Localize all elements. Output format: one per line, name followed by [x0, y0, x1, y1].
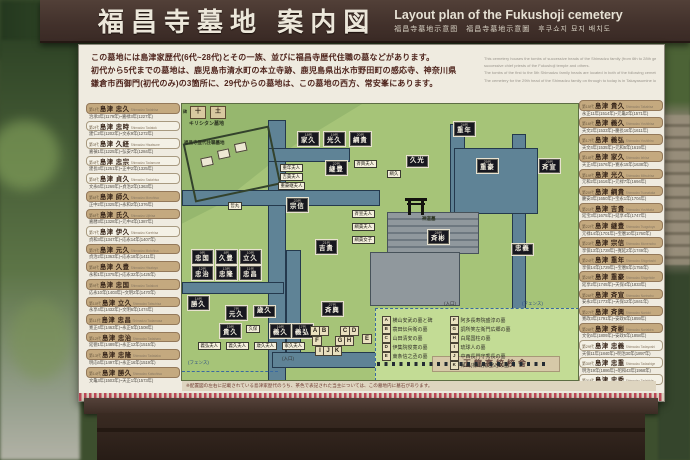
lord-entry: 第11代島津 忠昌Shimadzu Tadamasa寛正4年(1463年)~永正… [86, 314, 180, 332]
tomb-box-忠義: 忠義 [512, 244, 533, 255]
lord-entry-name: 第16代島津 義久Shimadzu Yoshihisa [579, 117, 663, 128]
lord-entry-name: 第21代島津 吉貴Shimadzu Yoshitaka [579, 203, 663, 214]
tomb-name: 義弘 [295, 330, 310, 337]
lord-name-romaji: Shimadzu Morohisa [131, 196, 159, 200]
lord-entry: 第4代島津 忠宗Shimadzu Tadamune建長3年(1251年)~正中2… [86, 156, 180, 174]
family-tomb-box: 綱貴女子 [352, 236, 375, 244]
generation-label: 第23代 [582, 242, 594, 247]
lord-entry-name: 第17代島津 義弘Shimadzu Yoshihiro [579, 134, 663, 145]
tomb-box-綱貴: 20代綱貴 [350, 132, 371, 146]
lord-entry-name: 第29代島津 忠義Shimadzu Tadayoshi [579, 340, 663, 351]
sign-post-rail [84, 398, 658, 414]
lord-dates: 建仁2年(1202年)~文永9年(1272年) [86, 131, 180, 137]
lord-name: 島津 忠隆 [102, 350, 132, 359]
lord-dates: 永正11年(1514年)~元亀2年(1571年) [579, 111, 663, 117]
lord-name-romaji: Shimadzu Iehisa [626, 156, 650, 160]
intro-text-japanese: この墓地には島津家歴代(6代~28代)とその一族、並びに福昌寺歴代住職の墓などが… [91, 52, 483, 90]
lord-name-romaji: Shimadzu Katsuhisa [133, 372, 162, 376]
lord-entry-name: 第20代島津 綱貴Shimadzu Tsunataka [579, 186, 663, 197]
lord-entry: 第10代島津 立久Shimadzu Tatsuhisa永享4年(1432年)~文… [86, 297, 180, 315]
sign-post-base [97, 413, 645, 460]
lord-name: 島津 継豊 [595, 221, 625, 230]
lord-entry: 第1代島津 忠久Shimadzu Tadahisa治承3年(1179年)~嘉禄3… [86, 103, 180, 121]
lord-entry: 第23代島津 宗信Shimadzu Munenobu享保13年(1728年)~寛… [579, 237, 663, 254]
intro-line-en: This cemetery houses the tombs of succes… [484, 55, 656, 62]
priests-cemetery-label: 福昌寺歴代住職墓地 [184, 140, 225, 145]
christian-grave-icon: 土 [210, 106, 226, 119]
tomb-box-斉宣: 26代斉宣 [539, 159, 560, 173]
lord-entry-name: 第1代島津 忠久Shimadzu Tadahisa [86, 103, 180, 114]
legend-key: C [382, 334, 391, 343]
map-marker-H: H [344, 336, 354, 346]
tomb-name: 光久 [327, 138, 342, 145]
cemetery-map: 十 土 碑 キリシタン墓地 福昌寺歴代住職墓地 神道墓 玉龍高校校舎 (入口) … [181, 103, 579, 381]
intro-line-en: The cemetery for the 29th head of the Sh… [484, 77, 656, 84]
legend-text: 調所笑左衛門広郷の墓 [461, 326, 511, 333]
christian-grave-icon: 十 [190, 106, 206, 119]
legend-key: E [382, 352, 391, 361]
lord-dates: 天文4年(1535年)~元和5年(1619年) [579, 145, 663, 151]
kirishitan-cemetery-label: キリシタン墓地 [189, 120, 224, 127]
grave-icon [217, 148, 231, 159]
tomb-box-吉貴: 21代吉貴 [316, 240, 337, 254]
lord-name-romaji: Shimadzu Munenobu [626, 242, 656, 246]
tomb-box-重豪: 25代重豪 [477, 159, 498, 173]
tomb-box-継豊: 22代継豊 [326, 161, 347, 175]
legend-item-B: B蓑田伝兵衛の墓 [382, 325, 428, 334]
fence-label: (フェンス) [188, 360, 209, 366]
tomb-name: 貴久 [223, 330, 238, 337]
map-road [370, 252, 460, 306]
legend-text: 帰山(樺山資之父)の墓 [461, 362, 509, 369]
tomb-name: 義久 [273, 330, 288, 337]
lord-name-romaji: Shimadzu Tadatoki [131, 126, 158, 130]
lord-name: 島津 光久 [595, 170, 625, 179]
lord-entry-name: 第3代島津 久経Shimadzu Hisatsune [86, 138, 180, 149]
lord-name: 島津 重年 [595, 255, 625, 264]
generation-label: 第14代 [89, 372, 101, 377]
family-tomb-box: 家久夫人 [282, 342, 305, 350]
lord-entry-name: 第6代島津 氏久Shimadzu Ujihisa [86, 209, 180, 220]
legend-item-A: A横山安武の墓と碑 [382, 316, 433, 325]
generation-label: 第16代 [582, 122, 594, 127]
tomb-box-歳久: 歳久 [254, 306, 275, 317]
entrance-label: (入口) [444, 301, 456, 307]
lord-entry-name: 第14代島津 勝久Shimadzu Katsuhisa [86, 367, 180, 378]
lord-name-romaji: Shimadzu Hisatsune [131, 143, 160, 147]
legend-key: J [450, 352, 459, 361]
lord-entry: 第7代島津 伊久Shimadzu Korehisa貞和3年(1347年)~応永1… [86, 226, 180, 244]
tomb-box-忠国: 9代忠国 [192, 250, 213, 264]
lord-dates: 延徳1年(1489年)~永正12年(1515年) [86, 342, 180, 348]
legend-text: 東条信之丞の墓 [393, 353, 428, 360]
lord-entry: 第20代島津 綱貴Shimadzu Tsunataka慶安3年(1650年)~宝… [579, 186, 663, 203]
lord-name: 島津 忠宗 [100, 157, 130, 166]
legend-key: B [382, 325, 391, 334]
lord-dates: 元禄14年(1701年)~宝暦10年(1760年) [579, 231, 663, 237]
tomb-name: 重年 [457, 128, 472, 135]
tomb-name: 歳久 [257, 308, 272, 315]
lord-name-romaji: Shimadzu Korehisa [131, 231, 159, 235]
tomb-box-斉彬: 28代斉彬 [428, 230, 449, 244]
lord-entry-name: 第19代島津 光久Shimadzu Mitsuhisa [579, 169, 663, 180]
lord-name-romaji: Shimadzu Hisatoyo [131, 266, 158, 270]
legend-key: H [450, 334, 459, 343]
tomb-name: 吉貴 [319, 246, 334, 253]
generation-label: 第2代 [89, 126, 99, 131]
lord-name-romaji: Shimadzu Narinobu [626, 294, 654, 298]
lord-entry: 第16代島津 義久Shimadzu Yoshihisa天文2年(1533年)~慶… [579, 117, 663, 134]
tomb-name: 重豪 [480, 165, 495, 172]
lord-entry: 第26代島津 斉宣Shimadzu Narinobu安永2年(1773年)~天保… [579, 289, 663, 306]
generation-label: 第22代 [582, 225, 594, 230]
legend-item-J: J中西長門守秀長の墓 [450, 352, 506, 361]
lord-name: 島津 義弘 [595, 135, 625, 144]
lord-dates: 享保13年(1728年)~寛延2年(1749年) [579, 248, 663, 254]
generation-label: 第24代 [582, 259, 594, 264]
lord-name: 島津 忠治 [102, 333, 132, 342]
legend-text: 琉球人の墓 [461, 344, 486, 351]
tomb-box-元久: 7代元久 [226, 306, 247, 320]
lord-dates: 安永2年(1773年)~天保12年(1841年) [579, 299, 663, 305]
tomb-box-立久: 10代立久 [240, 250, 261, 264]
tomb-box-光久: 19代光久 [324, 132, 345, 146]
generation-label: 第5代 [89, 178, 99, 183]
family-tomb-box: 義弘夫人 [198, 342, 221, 350]
lord-name-romaji: Shimadzu Tadayoshi [626, 345, 655, 349]
tomb-name: 忠昌 [243, 272, 258, 279]
lord-entry: 第29代島津 忠義Shimadzu Tadayoshi天保11年(1840年)~… [579, 340, 663, 357]
generation-label: 第1代 [89, 108, 99, 113]
tomb-name: 斉宣 [542, 165, 557, 172]
lord-entry: 第6代島津 氏久Shimadzu Ujihisa嘉暦3年(1328年)~元中4年… [86, 209, 180, 227]
lord-dates: 嘉暦3年(1328年)~元中4年(1387年) [86, 219, 180, 225]
lord-entry: 第2代島津 忠時Shimadzu Tadatoki建仁2年(1202年)~文永9… [86, 121, 180, 139]
lord-dates: 元和2年(1616年)~元禄7年(1694年) [579, 179, 663, 185]
legend-item-F: F阿多長寿院盛淳の墓 [450, 316, 506, 325]
tomb-name: 忠治 [195, 272, 210, 279]
tomb-box-久光: 久光 [407, 156, 428, 167]
lord-entry-name: 第11代島津 忠昌Shimadzu Tadamasa [86, 314, 180, 325]
lord-name-romaji: Shimadzu Shigehide [626, 276, 655, 280]
lord-name-romaji: Shimadzu Tadaharu [133, 337, 161, 341]
lord-entry: 第25代島津 重豪Shimadzu Shigehide延享2年(1745年)~天… [579, 271, 663, 288]
map-marker-K: K [332, 346, 342, 356]
tomb-box-久豊: 8代久豊 [216, 250, 237, 264]
lord-entry-name: 第28代島津 斉彬Shimadzu Nariakira [579, 323, 663, 334]
sign-post-band [97, 428, 645, 432]
lord-entry: 第27代島津 斉興Shimadzu Narioki寛政3年(1791年)~安政6… [579, 306, 663, 323]
lord-entry-name: 第23代島津 宗信Shimadzu Munenobu [579, 237, 663, 248]
lord-entry: 第14代島津 勝久Shimadzu Katsuhisa文亀3年(1503年)~天… [86, 367, 180, 385]
lord-dates: 治承3年(1179年)~嘉禄3年(1227年) [86, 114, 180, 120]
intro-line: 初代から5代までの墓地は、鹿児島市清水町の本立寺跡、鹿児島県出水市野田町の感応寺… [91, 65, 483, 78]
legend-key: D [382, 343, 391, 352]
family-tomb-box: 重年夫人 [280, 164, 303, 172]
tomb-name: 斉興 [325, 308, 340, 315]
family-tomb-box: 歳久夫人 [254, 342, 277, 350]
tomb-box-斉興: 27代斉興 [322, 302, 343, 316]
tomb-name: 家久 [301, 138, 316, 145]
lord-name-romaji: Shimadzu Narioki [626, 311, 651, 315]
tomb-box-貴久: 15代貴久 [220, 324, 241, 338]
map-marker-E: E [362, 334, 372, 344]
lord-entry-name: 第9代島津 忠国Shimadzu Tadakuni [86, 279, 180, 290]
intro-line-en: successive chief priests of the Fukushoj… [484, 62, 656, 69]
family-tomb-box: 重豪継夫人 [278, 182, 305, 190]
lord-entry-name: 第6代島津 師久Shimadzu Morohisa [86, 191, 180, 202]
cemetery-sign-photo: 福昌寺墓地 案内図 Layout plan of the Fukushoji c… [0, 0, 690, 460]
generation-label: 第20代 [582, 191, 594, 196]
generation-label: 第3代 [89, 143, 99, 148]
generation-label: 第15代 [582, 105, 594, 110]
lord-entry-name: 第27代島津 斉興Shimadzu Narioki [579, 306, 663, 317]
lord-dates: 永和1年(1375年)~応永32年(1425年) [86, 272, 180, 278]
lord-entry: 第22代島津 継豊Shimadzu Tsugutoyo元禄14年(1701年)~… [579, 220, 663, 237]
lord-entry: 第13代島津 忠隆Shimadzu Tadataka明応6年(1497年)~永正… [86, 349, 180, 367]
lord-name-romaji: Shimadzu Yoshihisa [626, 122, 655, 126]
lord-name: 島津 綱貴 [595, 187, 625, 196]
sign-title-english: Layout plan of the Fukushoji cemetery [394, 8, 623, 22]
legend-item-I: I琉球人の墓 [450, 343, 486, 352]
lord-name-romaji: Shimadzu Tadahisa [131, 108, 159, 112]
lord-name: 島津 重豪 [595, 272, 625, 281]
generation-label: 第29代 [582, 345, 594, 350]
generation-label: 第9代 [89, 284, 99, 289]
lord-dates: 寛正4年(1463年)~永正5年(1508年) [86, 325, 180, 331]
legend-text: 伊集院俊寛の墓 [393, 344, 428, 351]
lord-entry: 第5代島津 貞久Shimadzu Sadahisa文永6年(1269年)~貞治2… [86, 173, 180, 191]
legend-text: 山田清安の墓 [393, 335, 423, 342]
tomb-name: 元久 [229, 312, 244, 319]
grave-icon [234, 142, 248, 153]
generation-label: 第10代 [89, 302, 101, 307]
legend-item-G: G調所笑左衛門広郷の墓 [450, 325, 511, 334]
lord-entry-name: 第18代島津 家久Shimadzu Iehisa [579, 151, 663, 162]
lord-name: 島津 宗信 [595, 238, 625, 247]
lord-dates: 建長3年(1251年)~正中2年(1325年) [86, 166, 180, 172]
lord-entry: 第30代島津 忠重Shimadzu Tadashige明治19年(1886年)~… [579, 357, 663, 374]
map-marker-D: D [349, 326, 359, 336]
tomb-name: 綱貴 [353, 138, 368, 145]
footnote: ※配置図の左右に記載されている島津家歴代のうち、茶色で表記された当主については、… [182, 381, 656, 391]
lord-name: 島津 忠重 [595, 358, 625, 367]
lords-list-left: 第1代島津 忠久Shimadzu Tadahisa治承3年(1179年)~嘉禄3… [86, 103, 180, 385]
tomb-name: 立久 [243, 256, 258, 263]
generation-label: 第6代 [89, 196, 99, 201]
lord-name-romaji: Shimadzu Mitsuhisa [626, 174, 655, 178]
legend-text: 白尾国柱の墓 [461, 335, 491, 342]
generation-label: 第8代 [89, 266, 99, 271]
lord-name-romaji: Shimadzu Tsugutoyo [626, 225, 656, 229]
intro-line: 鎌倉市西御門(初代のみ)の3箇所に、29代からの墓地は、この墓地の西方、常安峯に… [91, 78, 483, 91]
sign-title-multilang: 福昌寺墓地示意图 福昌寺墓地示意圖 후쿠쇼지 묘지 배치도 [394, 24, 623, 34]
lord-dates: 貞治2年(1363年)~応永18年(1411年) [86, 254, 180, 260]
legend-text: 中西長門守秀長の墓 [461, 353, 506, 360]
generation-label: 第11代 [89, 319, 101, 324]
lord-dates: 文化6年(1809年)~安政5年(1858年) [579, 333, 663, 339]
family-tomb-box: 久保 [246, 325, 260, 333]
lord-name-romaji: Shimadzu Tadamune [131, 161, 161, 165]
generation-label: 第6代 [89, 214, 99, 219]
generation-label: 第27代 [582, 311, 594, 316]
tomb-box-家久: 18代家久 [298, 132, 319, 146]
lord-dates: 応永10年(1403年)~文明2年(1470年) [86, 290, 180, 296]
lord-dates: 延享2年(1745年)~天保4年(1833年) [579, 282, 663, 288]
lord-entry: 第3代島津 久経Shimadzu Hisatsune嘉禎1年(1225年)~弘安… [86, 138, 180, 156]
family-tomb-box: 綱貴夫人 [352, 223, 375, 231]
lord-dates: 文亀3年(1503年)~天正1年(1573年) [86, 378, 180, 384]
lord-entry: 第18代島津 家久Shimadzu Iehisa天正4年(1576年)~寛永15… [579, 151, 663, 168]
lord-entry: 第7代島津 元久Shimadzu Motohisa貞治2年(1363年)~応永1… [86, 244, 180, 262]
tomb-name: 忠国 [195, 256, 210, 263]
generation-label: 第13代 [89, 354, 101, 359]
family-tomb-box: 吉貴夫人 [280, 173, 303, 181]
lord-dates: 天文2年(1533年)~慶長16年(1611年) [579, 128, 663, 134]
family-tomb-box: 斉宣夫人 [352, 210, 375, 218]
lord-name: 島津 忠時 [100, 122, 130, 131]
legend-key: K [450, 361, 459, 370]
lord-name-romaji: Shimadzu Tsunataka [626, 191, 656, 195]
legend-key: F [450, 316, 459, 325]
generation-label: 第7代 [89, 249, 99, 254]
lord-name: 島津 久豊 [100, 262, 130, 271]
legend-key: I [450, 343, 459, 352]
tomb-name: 久豊 [219, 256, 234, 263]
lord-dates: 延宝3年(1675年)~延享4年(1747年) [579, 213, 663, 219]
entrance-label: (入口) [282, 356, 294, 362]
lord-dates: 文永6年(1269年)~貞治2年(1363年) [86, 184, 180, 190]
sign-title-japanese: 福昌寺墓地 案内図 [98, 2, 376, 39]
legend-item-E: E東条信之丞の墓 [382, 352, 428, 361]
lord-entry-name: 第2代島津 忠時Shimadzu Tadatoki [86, 121, 180, 132]
lord-entry: 第21代島津 吉貴Shimadzu Yoshitaka延宝3年(1675年)~延… [579, 203, 663, 220]
family-tomb-box: 斉興夫人 [354, 160, 377, 168]
lord-entry-name: 第10代島津 立久Shimadzu Tatsuhisa [86, 297, 180, 308]
lord-name-romaji: Shimadzu Shigetoshi [626, 259, 656, 263]
header-right-block: Layout plan of the Fukushoji cemetery 福昌… [394, 8, 623, 34]
generation-label: 第26代 [582, 294, 594, 299]
lord-dates: 慶安3年(1650年)~宝永1年(1704年) [579, 196, 663, 202]
lord-entry-name: 第30代島津 忠重Shimadzu Tadashige [579, 357, 663, 368]
lord-name: 島津 師久 [100, 192, 130, 201]
lord-entry: 第17代島津 義弘Shimadzu Yoshihiro天文4年(1535年)~元… [579, 134, 663, 151]
tomb-box-忠昌: 11代忠昌 [240, 266, 261, 280]
legend-text: 横山安武の墓と碑 [393, 317, 433, 324]
tomb-box-勝久: 14代勝久 [188, 296, 209, 310]
lord-entry-name: 第13代島津 忠隆Shimadzu Tadataka [86, 349, 180, 360]
lord-name: 島津 忠国 [100, 280, 130, 289]
legend-item-K: K帰山(樺山資之父)の墓 [450, 361, 509, 370]
lord-entry: 第6代島津 師久Shimadzu Morohisa正中2年(1325年)~永和2… [86, 191, 180, 209]
lord-entry-name: 第5代島津 貞久Shimadzu Sadahisa [86, 173, 180, 184]
lord-dates: 貞和3年(1347年)~応永14年(1407年) [86, 237, 180, 243]
tomb-name: 継豊 [329, 167, 344, 174]
generation-label: 第4代 [89, 161, 99, 166]
family-tomb-box: 綱久 [387, 170, 401, 178]
map-marker-F: F [312, 336, 322, 346]
lord-entry: 第24代島津 重年Shimadzu Shigetoshi享保14年(1729年)… [579, 254, 663, 271]
family-tomb-box: 義久夫人 [226, 342, 249, 350]
intro-line-en: The tombs of the first to the 5th Shimad… [484, 69, 656, 76]
lord-name-romaji: Shimadzu Tadamasa [132, 319, 162, 323]
lord-name-romaji: Shimadzu Tadataka [133, 354, 161, 358]
lord-name: 島津 吉貴 [595, 204, 625, 213]
lord-entry: 第19代島津 光久Shimadzu Mitsuhisa元和2年(1616年)~元… [579, 169, 663, 186]
lord-name-romaji: Shimadzu Tadakuni [131, 284, 159, 288]
lord-entry: 第28代島津 斉彬Shimadzu Nariakira文化6年(1809年)~安… [579, 323, 663, 340]
map-path [268, 148, 350, 162]
monument-label: 碑 [183, 109, 187, 115]
lord-name-romaji: Shimadzu Motohisa [131, 249, 159, 253]
intro-line: この墓地には島津家歴代(6代~28代)とその一族、並びに福昌寺歴代住職の墓などが… [91, 52, 483, 65]
tomb-name: 宗信 [290, 204, 305, 211]
map-path [182, 282, 284, 294]
lord-dates: 明治19年(1886年)~昭和43年(1968年) [579, 368, 663, 374]
generation-label: 第19代 [582, 174, 594, 179]
lord-name: 島津 氏久 [100, 210, 130, 219]
lord-name-romaji: Shimadzu Takahisa [626, 105, 654, 109]
lord-entry-name: 第22代島津 継豊Shimadzu Tsugutoyo [579, 220, 663, 231]
lord-name: 島津 家久 [595, 152, 625, 161]
lord-entry: 第12代島津 忠治Shimadzu Tadaharu延徳1年(1489年)~永正… [86, 332, 180, 350]
lord-dates: 天保11年(1840年)~明治30年(1897年) [579, 351, 663, 357]
foliage-highlight [10, 300, 70, 380]
lord-entry: 第8代島津 久豊Shimadzu Hisatoyo永和1年(1375年)~応永3… [86, 261, 180, 279]
lord-name: 島津 勝久 [102, 368, 132, 377]
lord-name-romaji: Shimadzu Nariakira [626, 328, 654, 332]
fence-dashed-line [182, 371, 278, 372]
generation-label: 第17代 [582, 139, 594, 144]
lord-name: 島津 斉興 [595, 307, 625, 316]
tomb-box-宗信: 23代宗信 [287, 198, 308, 212]
lord-name: 島津 貴久 [595, 101, 625, 110]
lord-name-romaji: Shimadzu Tadashige [626, 362, 656, 366]
lord-name: 島津 忠久 [100, 104, 130, 113]
lord-name: 島津 斉宣 [595, 290, 625, 299]
legend-item-C: C山田清安の墓 [382, 334, 423, 343]
lord-entry-name: 第4代島津 忠宗Shimadzu Tadamune [86, 156, 180, 167]
background-foliage-left [0, 40, 80, 460]
lord-entry: 第9代島津 忠国Shimadzu Tadakuni応永10年(1403年)~文明… [86, 279, 180, 297]
lord-dates: 正中2年(1325年)~永和2年(1376年) [86, 202, 180, 208]
lord-dates: 天正4年(1576年)~寛永15年(1638年) [579, 162, 663, 168]
sign-board: この墓地には島津家歴代(6代~28代)とその一族、並びに福昌寺歴代住職の墓などが… [78, 44, 665, 402]
lords-list-right: 第15代島津 貴久Shimadzu Takahisa永正11年(1514年)~元… [579, 100, 663, 391]
lord-entry-name: 第7代島津 元久Shimadzu Motohisa [86, 244, 180, 255]
fence-label: (フェンス) [522, 301, 543, 307]
lord-name: 島津 立久 [102, 298, 132, 307]
tomb-name: 忠義 [515, 246, 530, 253]
tomb-name: 忠隆 [219, 272, 234, 279]
map-pond-area [454, 148, 538, 214]
generation-label: 第18代 [582, 156, 594, 161]
grave-icon [200, 156, 214, 167]
torii-gate-icon [405, 198, 427, 215]
tomb-name: 久光 [410, 158, 425, 165]
tomb-name: 勝久 [191, 302, 206, 309]
generation-label: 第28代 [582, 328, 594, 333]
generation-label: 第7代 [89, 231, 99, 236]
lord-name: 島津 義久 [595, 118, 625, 127]
legend-text: 蓑田伝兵衛の墓 [393, 326, 428, 333]
lord-name-romaji: Shimadzu Yoshitaka [626, 208, 655, 212]
legend-key: A [382, 316, 391, 325]
lord-name: 島津 久経 [100, 139, 130, 148]
lord-entry-name: 第7代島津 伊久Shimadzu Korehisa [86, 226, 180, 237]
lord-name: 島津 貞久 [100, 174, 130, 183]
lord-name: 島津 忠昌 [102, 315, 132, 324]
